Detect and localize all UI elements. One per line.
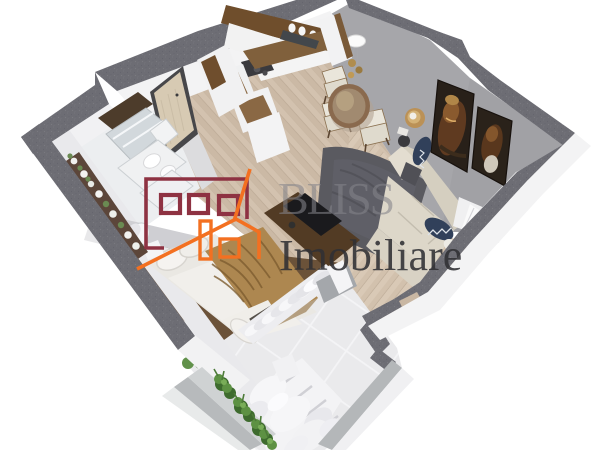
svg-text:Imobiliare: Imobiliare (279, 231, 462, 280)
svg-text:BLISS: BLISS (278, 173, 393, 224)
